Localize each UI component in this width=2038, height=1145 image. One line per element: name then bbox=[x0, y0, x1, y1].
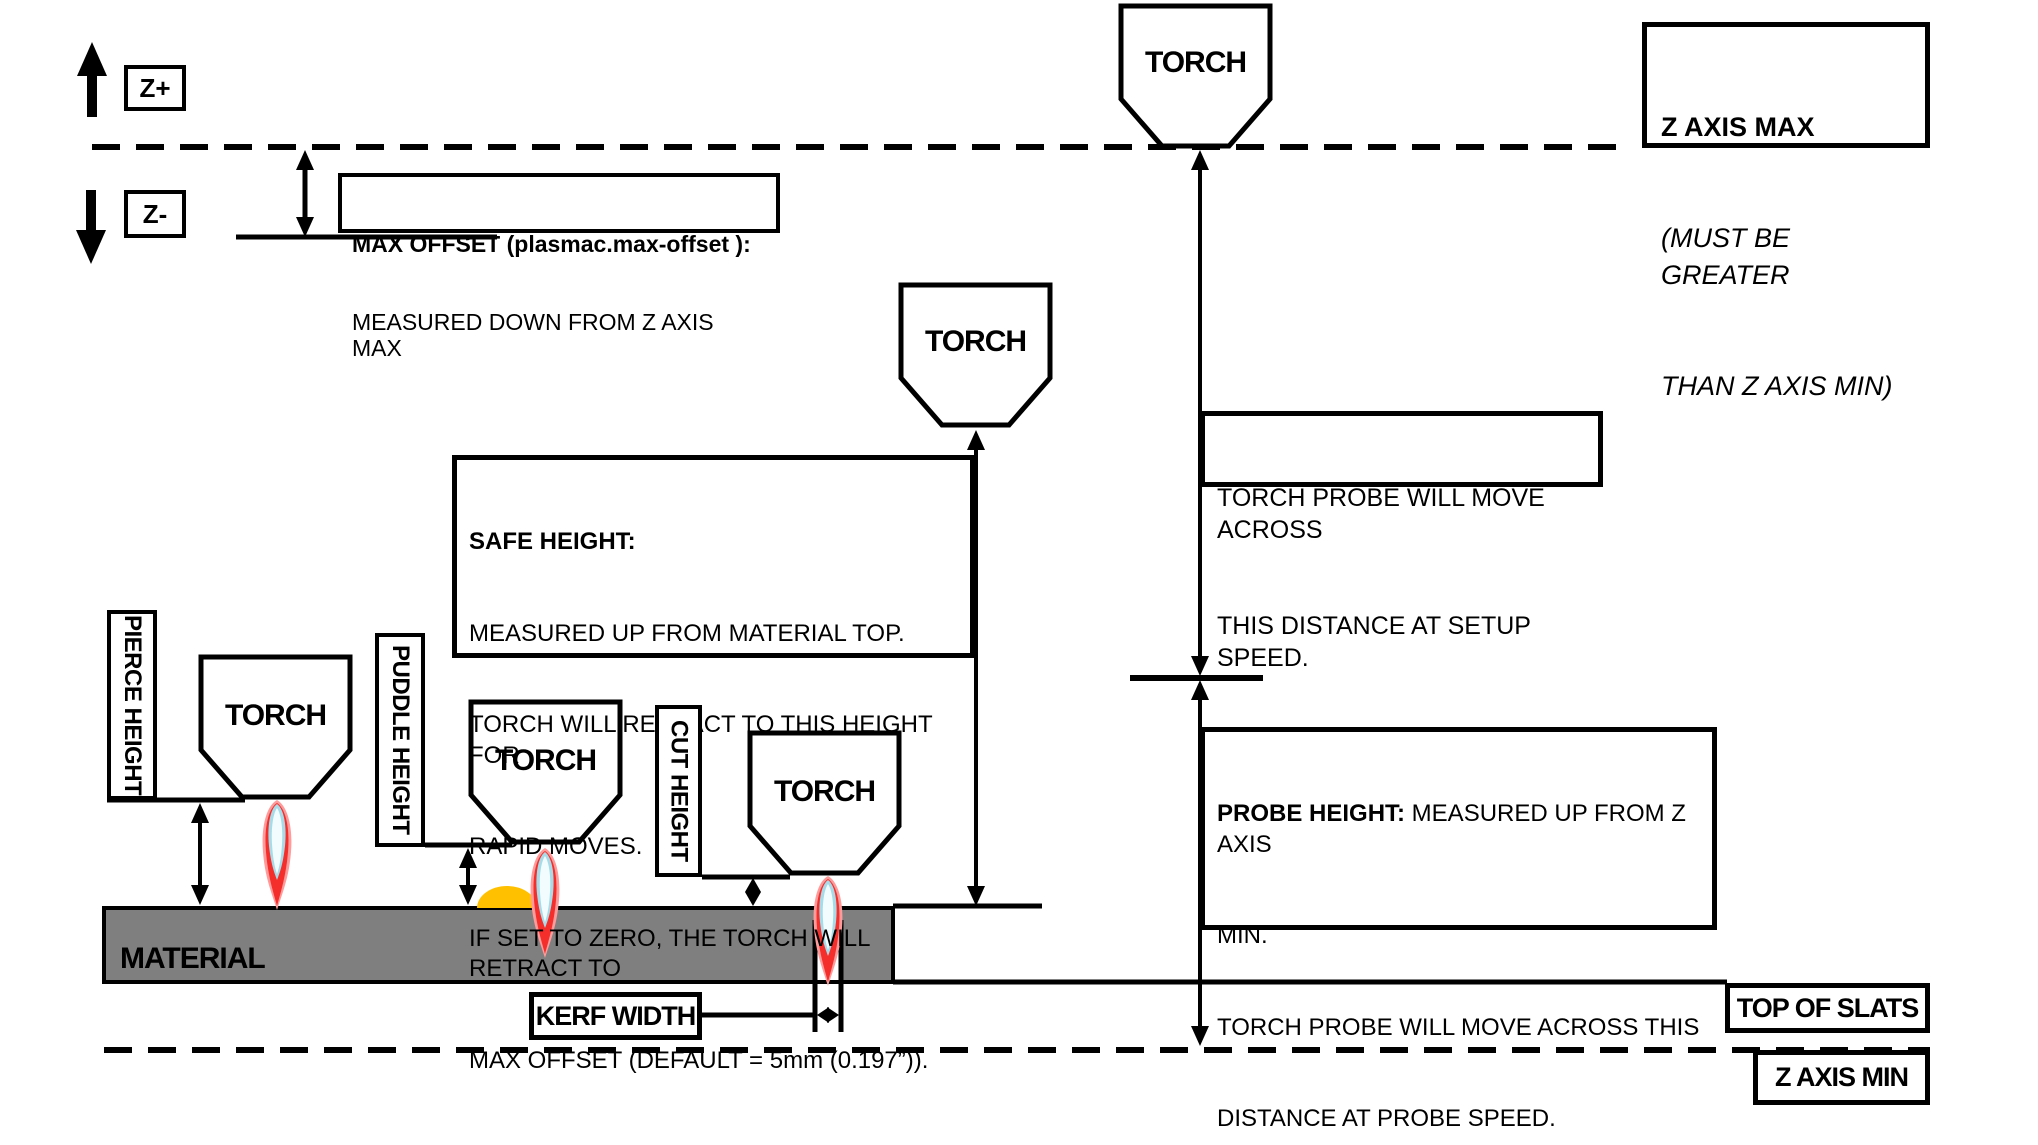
safe-height-line4: IF SET TO ZERO, THE TORCH WILL RETRACT T… bbox=[469, 924, 958, 985]
torch-top-label: TORCH bbox=[1118, 43, 1273, 83]
torch-probe-line2: THIS DISTANCE AT SETUP SPEED. bbox=[1217, 610, 1586, 674]
z-axis-max-box: Z AXIS MAX (MUST BE GREATER THAN Z AXIS … bbox=[1642, 22, 1930, 148]
torch-pierce-label: TORCH bbox=[198, 696, 353, 736]
safe-height-line3: RAPID MOVES. bbox=[469, 832, 958, 863]
probe-height-line2: TORCH PROBE WILL MOVE ACROSS THIS bbox=[1217, 1013, 1700, 1044]
pierce-height-label: PIERCE HEIGHT bbox=[107, 610, 157, 800]
safe-height-line2: TORCH WILL RETRACT TO THIS HEIGHT FOR bbox=[469, 710, 958, 771]
z-plus-arrow bbox=[77, 42, 107, 117]
z-minus-arrow bbox=[76, 190, 106, 264]
top-of-slats-box: TOP OF SLATS bbox=[1725, 983, 1930, 1033]
torch-probe-box: TORCH PROBE WILL MOVE ACROSS THIS DISTAN… bbox=[1200, 411, 1603, 487]
safe-height-title: SAFE HEIGHT: bbox=[469, 527, 958, 558]
safe-height-box: SAFE HEIGHT: MEASURED UP FROM MATERIAL T… bbox=[452, 455, 975, 658]
pierce-height-measure-arrow bbox=[191, 803, 209, 905]
z-axis-max-line2: (MUST BE GREATER bbox=[1661, 220, 1911, 294]
probe-height-title: PROBE HEIGHT: bbox=[1217, 800, 1405, 827]
puddle-height-label: PUDDLE HEIGHT bbox=[375, 633, 425, 847]
max-offset-line2: MEASURED DOWN FROM Z AXIS MAX bbox=[352, 309, 766, 361]
z-axis-max-title: Z AXIS MAX bbox=[1661, 109, 1911, 146]
max-offset-title: MAX OFFSET (plasmac.max-offset ): bbox=[352, 231, 766, 257]
kerf-width-box: KERF WIDTH bbox=[529, 992, 702, 1040]
z-minus-box: Z- bbox=[124, 190, 186, 238]
max-offset-box: MAX OFFSET (plasmac.max-offset ): MEASUR… bbox=[338, 173, 780, 233]
cut-height-label: CUT HEIGHT bbox=[655, 705, 702, 877]
z-axis-min-box: Z AXIS MIN bbox=[1753, 1050, 1930, 1105]
z-plus-box: Z+ bbox=[124, 65, 186, 111]
probe-height-line1: MIN. bbox=[1217, 921, 1700, 952]
safe-height-line1: MEASURED UP FROM MATERIAL TOP. bbox=[469, 619, 958, 650]
pierce-flame bbox=[263, 800, 292, 910]
probe-height-line3: DISTANCE AT PROBE SPEED. bbox=[1217, 1104, 1700, 1135]
material-label: MATERIAL bbox=[120, 942, 265, 976]
probe-height-titleline: PROBE HEIGHT: MEASURED UP FROM Z AXIS bbox=[1217, 799, 1700, 860]
safe-height-line5: MAX OFFSET (DEFAULT = 5mm (0.197”)). bbox=[469, 1046, 958, 1077]
torch-probe-line1: TORCH PROBE WILL MOVE ACROSS bbox=[1217, 482, 1586, 546]
z-axis-max-line3: THAN Z AXIS MIN) bbox=[1661, 368, 1911, 405]
plasmac-heights-diagram: TORCH TORCH TORCH TORCH TORCH Z+ Z- MAX … bbox=[0, 0, 2038, 1145]
torch-safe-label: TORCH bbox=[898, 322, 1053, 362]
probe-height-box: PROBE HEIGHT: MEASURED UP FROM Z AXIS MI… bbox=[1200, 727, 1717, 930]
